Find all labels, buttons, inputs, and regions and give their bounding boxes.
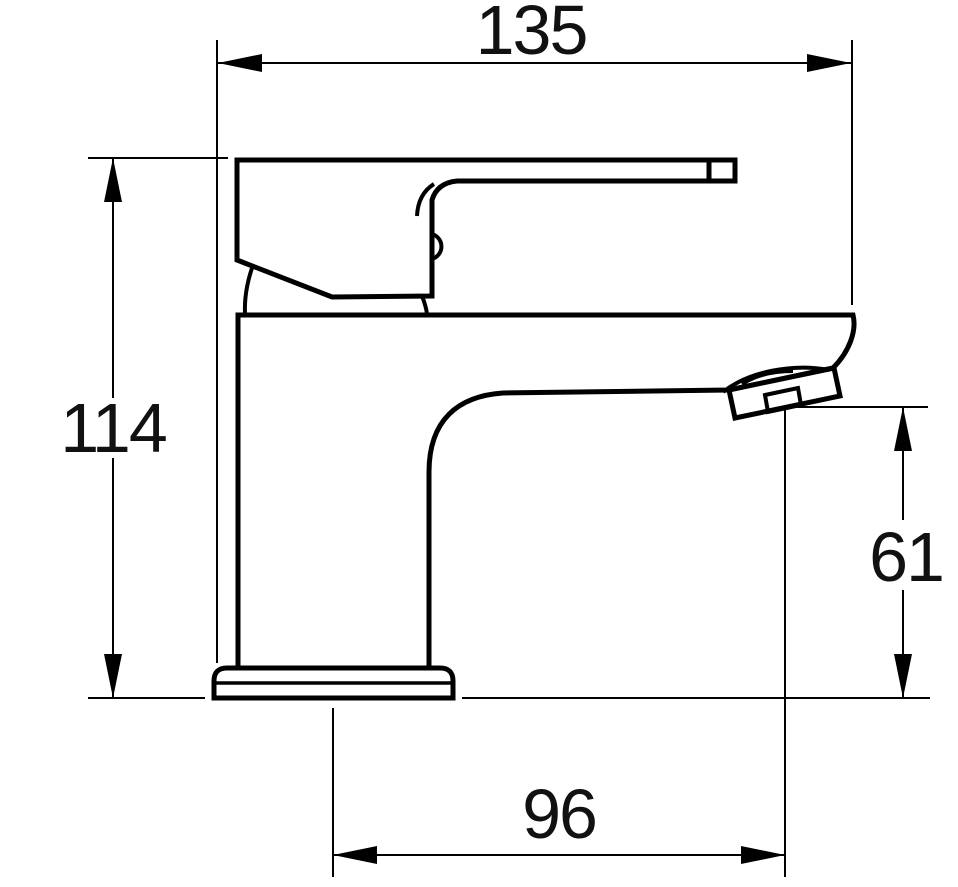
tap-body-spout [238,315,854,668]
handle-lever [237,160,735,297]
dim-114-arrow-down-icon [104,654,122,698]
dim-96-arrow-left-icon [333,846,377,864]
dim-label-spout-outlet-height: 61 [869,518,943,596]
dim-61-arrow-down-icon [894,654,912,698]
handle-skirt-curve-right [422,296,427,314]
dim-label-overall-height: 114 [60,389,166,467]
dim-61-arrow-up-icon [894,407,912,451]
dim-label-overall-length: 135 [476,0,587,69]
drawing-canvas: 135 114 61 96 [0,0,958,887]
dim-96-arrow-right-icon [741,846,785,864]
dimension-labels: 135 114 61 96 [53,0,943,853]
dim-label-spout-reach: 96 [522,775,596,853]
tap-outline [214,160,854,698]
dim-114-arrow-up-icon [104,158,122,202]
dim-135-arrow-left-icon [218,54,262,72]
handle-skirt-curve-left [245,268,252,314]
tap-dimension-drawing: 135 114 61 96 [0,0,958,887]
dim-135-arrow-right-icon [807,54,851,72]
